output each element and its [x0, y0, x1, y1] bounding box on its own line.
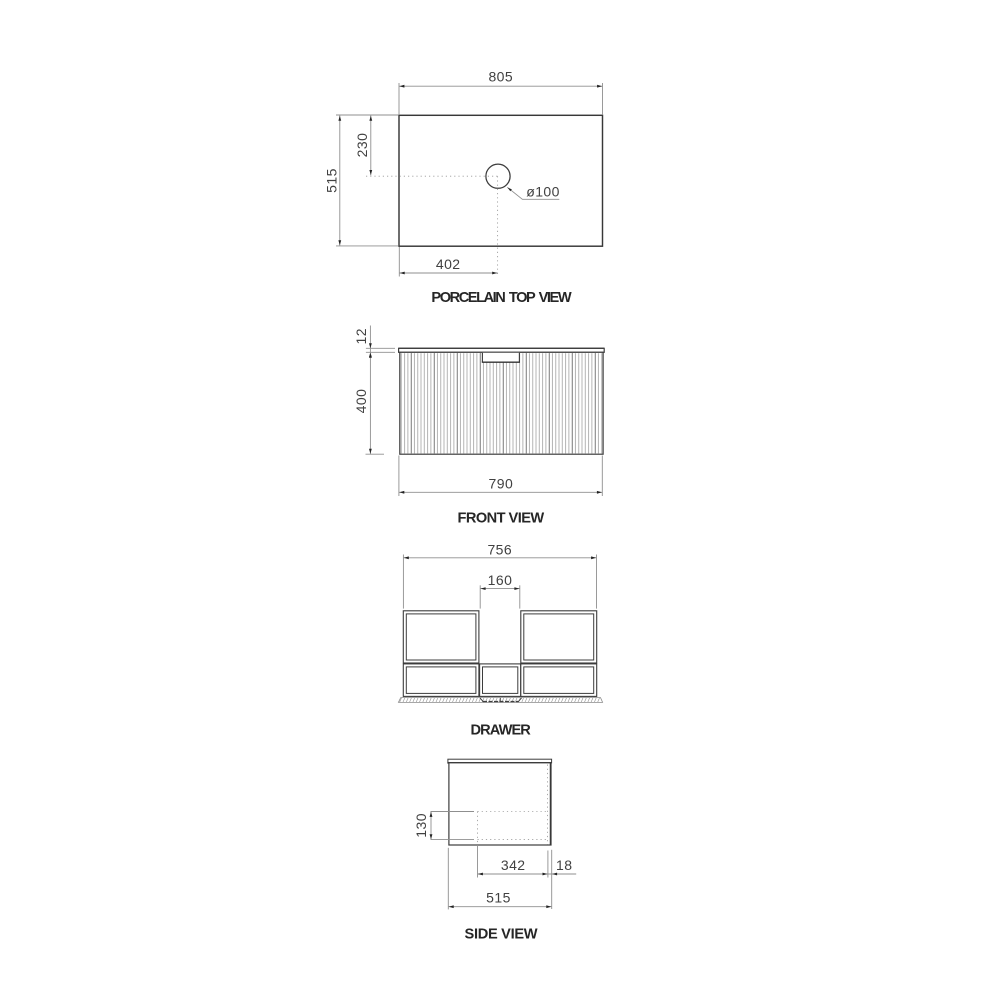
svg-text:DRAWER: DRAWER — [470, 723, 531, 739]
svg-text:342: 342 — [501, 857, 526, 873]
svg-text:FRONT VIEW: FRONT VIEW — [458, 510, 545, 526]
svg-text:756: 756 — [487, 541, 512, 557]
svg-text:400: 400 — [353, 389, 369, 414]
svg-text:515: 515 — [323, 168, 339, 193]
svg-text:12: 12 — [353, 328, 369, 344]
svg-text:805: 805 — [488, 69, 513, 85]
svg-text:402: 402 — [436, 256, 461, 272]
svg-text:130: 130 — [413, 813, 429, 838]
svg-text:160: 160 — [488, 572, 513, 588]
svg-text:18: 18 — [556, 857, 572, 873]
svg-text:790: 790 — [489, 475, 514, 491]
svg-text:ø100: ø100 — [526, 183, 560, 199]
svg-text:PORCELAIN TOP VIEW: PORCELAIN TOP VIEW — [431, 290, 571, 306]
svg-text:515: 515 — [486, 889, 511, 905]
svg-text:SIDE VIEW: SIDE VIEW — [465, 926, 538, 942]
svg-text:230: 230 — [354, 133, 370, 158]
